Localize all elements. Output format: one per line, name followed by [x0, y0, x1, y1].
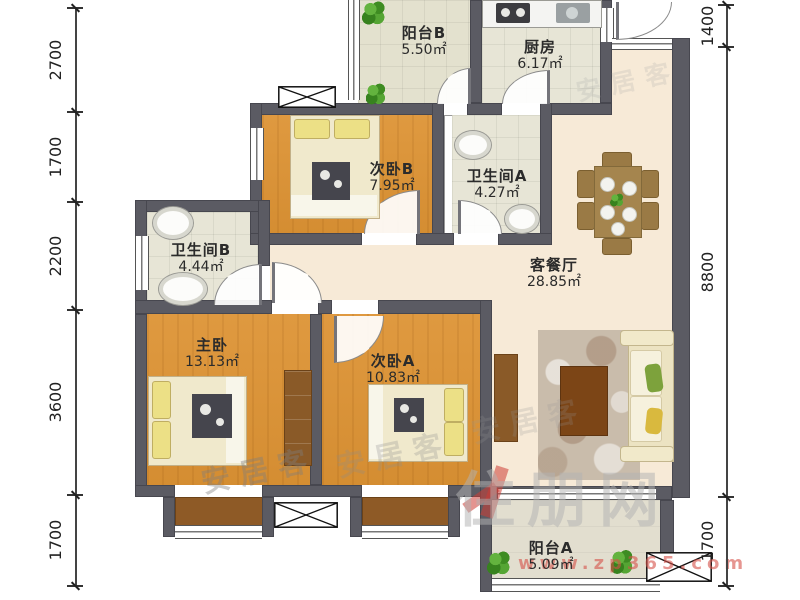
- wall: [135, 314, 147, 497]
- wall: [163, 497, 175, 537]
- wall: [378, 300, 492, 314]
- door-entrance: [616, 2, 672, 40]
- dimension-line-left: [75, 8, 77, 586]
- window-bedroom-b: [250, 128, 264, 180]
- wall: [350, 497, 362, 537]
- watermark-site-name: 住朋网: [455, 452, 671, 539]
- quilt: [312, 162, 350, 200]
- wall: [467, 103, 502, 115]
- dimension-label: 2200: [48, 226, 64, 286]
- window-bathroom-b: [135, 236, 149, 290]
- wall: [258, 200, 270, 266]
- dining-chair: [641, 170, 659, 198]
- plant: [366, 82, 386, 106]
- pillow: [152, 421, 171, 459]
- wall: [470, 0, 482, 103]
- toilet-icon: [152, 206, 194, 240]
- dimension-label: 1700: [48, 510, 64, 570]
- room-label-bathroom-b: 卫生间B4.44㎡: [156, 241, 246, 276]
- window-kitchen: [600, 8, 614, 42]
- bay-window-bedroom-a: [362, 497, 450, 527]
- stove-icon: [496, 3, 530, 23]
- bay-glazing-bedroom-a: [362, 525, 448, 539]
- dining-table: [594, 166, 642, 238]
- kitchen-sink-icon: [556, 3, 590, 23]
- room-label-kitchen: 厨房6.17㎡: [495, 38, 585, 73]
- sofa-armrest: [620, 330, 674, 346]
- room-label-master: 主卧13.13㎡: [167, 336, 257, 371]
- sink-icon: [158, 272, 208, 306]
- dining-chair: [577, 202, 595, 230]
- wall: [135, 485, 175, 497]
- dimension-label: 3600: [48, 372, 64, 432]
- toilet-icon: [454, 130, 492, 160]
- dining-chair: [577, 170, 595, 198]
- sink-icon: [504, 204, 540, 234]
- quilt: [192, 394, 232, 438]
- room-label-living-dining: 客餐厅28.85㎡: [509, 256, 599, 291]
- sofa-pillow-yellow: [645, 407, 664, 435]
- railing-balcony-b: [348, 0, 360, 100]
- dining-chair: [602, 238, 632, 255]
- dimension-label: 8800: [700, 242, 716, 302]
- wall: [262, 497, 274, 537]
- pillow: [334, 119, 370, 139]
- pillow: [444, 388, 464, 422]
- room-label-balcony-a: 阳台A5.09㎡: [506, 539, 596, 574]
- plant: [362, 0, 386, 26]
- room-label-bedroom-a: 次卧A10.83㎡: [348, 352, 438, 387]
- wall-outer-right: [672, 38, 690, 498]
- wall: [498, 233, 552, 245]
- dimension-label: 1700: [700, 511, 716, 571]
- dimension-label: 2700: [48, 30, 64, 90]
- dining-chair: [641, 202, 659, 230]
- pillow: [294, 119, 330, 139]
- dimension-label: 1400: [700, 0, 716, 56]
- floor-plan: 安居客 安居客 安居客 安居客 住朋网 www.zp365.com 阳台B5.5…: [0, 0, 800, 600]
- wall: [135, 200, 270, 212]
- window-symbol: [278, 86, 336, 108]
- table-plant: [610, 193, 624, 207]
- bay-glazing-master: [175, 525, 262, 539]
- railing-balcony-a: [492, 578, 660, 592]
- room-label-bathroom-a: 卫生间A4.27㎡: [452, 167, 542, 202]
- pillow: [152, 381, 171, 419]
- wall: [416, 233, 454, 245]
- room-label-balcony-b: 阳台B5.50㎡: [379, 24, 469, 59]
- wall: [262, 485, 362, 497]
- window-symbol: [274, 502, 338, 528]
- dimension-label: 1700: [48, 127, 64, 187]
- bay-window-master: [175, 497, 264, 527]
- room-label-bedroom-b: 次卧B7.95㎡: [347, 160, 437, 195]
